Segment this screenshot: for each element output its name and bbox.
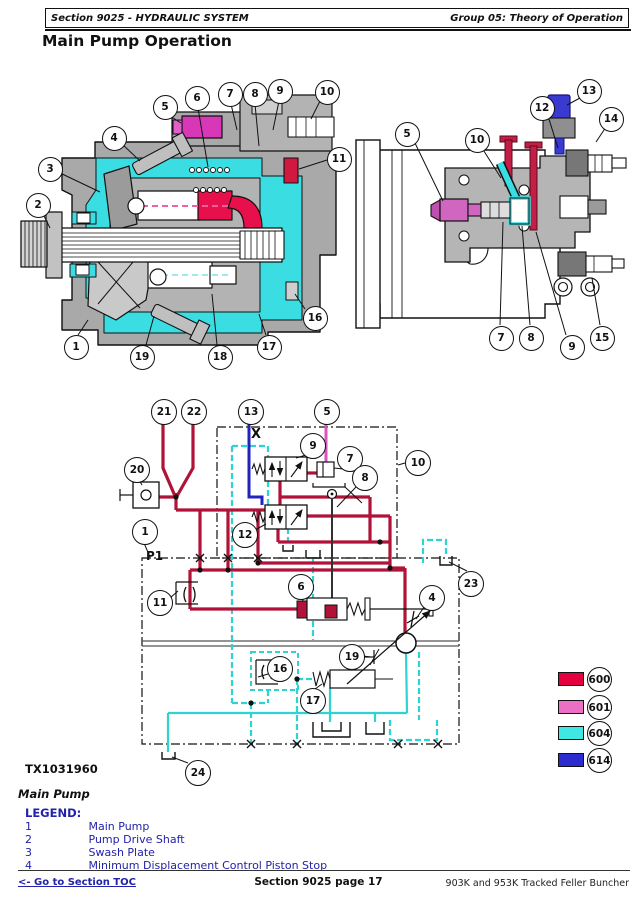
callout-left-6: 6 (185, 86, 210, 111)
callout-schematic-6: 6 (288, 574, 314, 600)
callout-schematic-23: 23 (458, 571, 484, 597)
callout-right-15: 15 (590, 326, 615, 351)
callout-left-19: 19 (130, 345, 155, 370)
callout-left-4: 4 (102, 126, 127, 151)
callout-schematic-9: 9 (300, 433, 326, 459)
callout-schematic-13: 13 (238, 399, 264, 425)
pilot-port-x-label: X (251, 427, 261, 442)
callout-pump-drive-shaft: 2 (26, 193, 51, 218)
callout-left-18: 18 (208, 345, 233, 370)
callout-left-8: 8 (243, 82, 268, 107)
callout-schematic-4: 4 (419, 585, 445, 611)
callout-left-5: 5 (153, 95, 178, 120)
p1-port-label: P1 (146, 549, 163, 563)
callout-schematic-22: 22 (181, 399, 207, 425)
callout-left-9: 9 (268, 79, 293, 104)
color-code-601: 601 (587, 695, 612, 720)
callout-schematic-24: 24 (185, 760, 211, 786)
callout-schematic-11: 11 (147, 590, 173, 616)
callout-right-9: 9 (560, 335, 585, 360)
callout-right-14: 14 (599, 107, 624, 132)
callout-schematic-8: 8 (352, 465, 378, 491)
callout-right-5: 5 (395, 122, 420, 147)
cross-section-figure (21, 95, 336, 345)
callout-schematic-1: 1 (132, 519, 158, 545)
color-code-604: 604 (587, 721, 612, 746)
callout-right-8: 8 (519, 326, 544, 351)
callout-schematic-10: 10 (405, 450, 431, 476)
callout-swash-plate: 3 (38, 157, 63, 182)
color-code-614: 614 (587, 748, 612, 773)
callout-left-10: 10 (315, 80, 340, 105)
callout-schematic-21: 21 (151, 399, 177, 425)
callout-left-11: 11 (327, 147, 352, 172)
callout-right-12: 12 (530, 96, 555, 121)
callout-schematic-20: 20 (124, 457, 150, 483)
callout-main-pump: 1 (64, 335, 89, 360)
callout-schematic-16: 16 (267, 656, 293, 682)
callout-right-7: 7 (489, 326, 514, 351)
callout-left-16: 16 (303, 306, 328, 331)
callout-left-7: 7 (218, 82, 243, 107)
callout-schematic-5: 5 (314, 399, 340, 425)
color-code-600: 600 (587, 667, 612, 692)
callout-right-13: 13 (577, 79, 602, 104)
callout-schematic-19: 19 (339, 644, 365, 670)
callout-schematic-12: 12 (232, 522, 258, 548)
callout-left-17: 17 (257, 335, 282, 360)
manual-page: Section 9025 - HYDRAULIC SYSTEM Group 05… (0, 0, 637, 903)
callout-schematic-17: 17 (300, 688, 326, 714)
callout-right-10: 10 (465, 128, 490, 153)
